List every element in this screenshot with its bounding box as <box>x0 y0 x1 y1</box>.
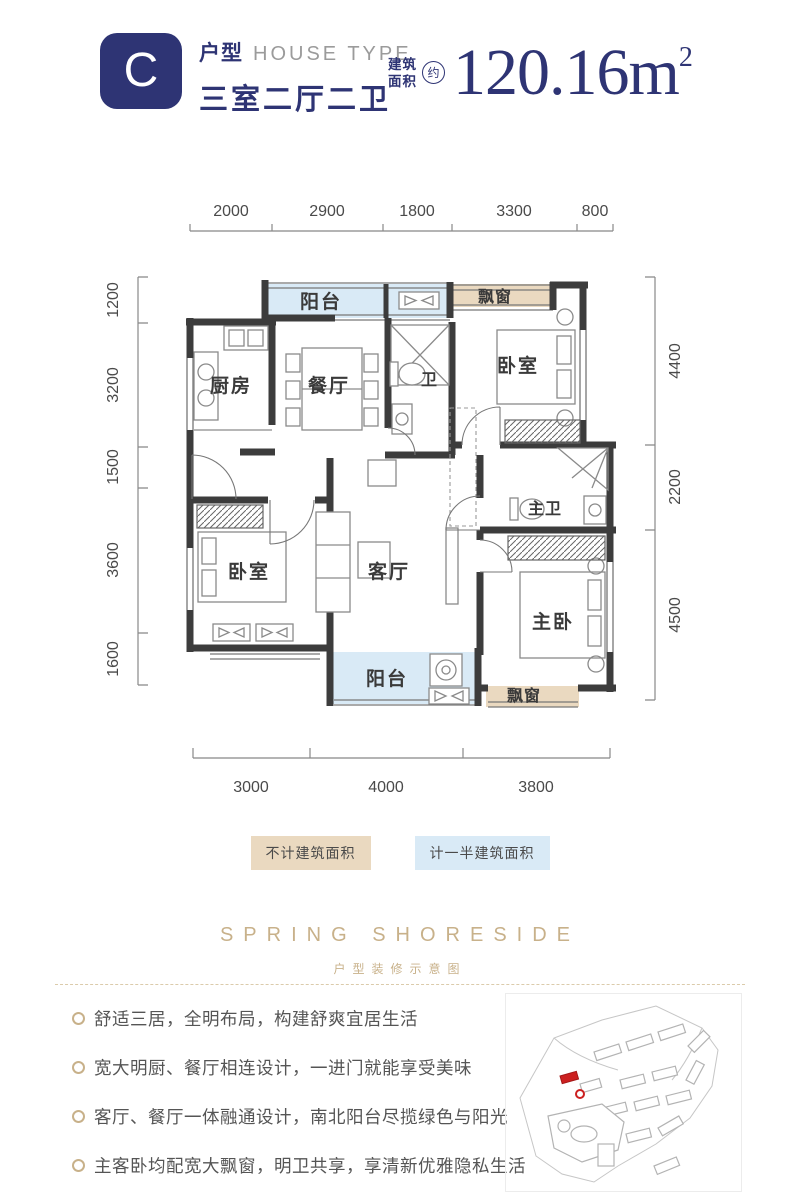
dim-top: 3300 <box>496 203 532 220</box>
room-label: 阳台 <box>366 667 408 690</box>
legend-item-excluded: 不计建筑面积 <box>251 836 371 870</box>
feature-item: 主客卧均配宽大飘窗，明卫共享，享清新优雅隐私生活 <box>72 1153 522 1178</box>
area-value: 120.16m2 <box>453 40 692 106</box>
plan-subtitle: 户型装修示意图 <box>0 960 800 977</box>
room-label: 卫 <box>421 372 438 389</box>
dim-left: 1200 <box>105 282 122 318</box>
bullet-icon <box>72 1159 85 1172</box>
branding: SPRING SHORESIDE 户型装修示意图 <box>0 924 800 977</box>
ac-unit-icon <box>429 688 469 704</box>
dim-right: 4400 <box>667 343 684 379</box>
room-label: 主卧 <box>532 611 574 633</box>
legend-label: 不计建筑面积 <box>251 836 371 870</box>
site-buildings <box>548 1024 710 1174</box>
room-label: 卧室 <box>497 354 539 377</box>
area-prefix-line1: 建筑 <box>388 57 417 74</box>
guest-bath-fixtures <box>390 325 449 434</box>
area-prefix: 建筑 面积 <box>388 57 417 91</box>
house-type-badge: C <box>100 33 182 109</box>
dim-top: 2900 <box>309 203 345 220</box>
legend-label: 计一半建筑面积 <box>415 836 550 870</box>
header: C 户型 HOUSE TYPE 三室二厅二卫 <box>100 33 412 118</box>
room-label: 客厅 <box>368 560 410 583</box>
feature-list: 舒适三居，全明布局，构建舒爽宜居生活 宽大明厨、餐厅相连设计，一进门就能享受美味… <box>72 1006 522 1202</box>
living-furniture <box>316 460 458 612</box>
ac-unit-icon <box>399 292 439 309</box>
room-label: 餐厅 <box>308 374 350 397</box>
room-label: 飘窗 <box>478 287 512 306</box>
bullet-icon <box>72 1110 85 1123</box>
room-label: 阳台 <box>300 290 342 313</box>
dashed-divider <box>55 984 745 985</box>
room-label: 卧室 <box>228 560 270 583</box>
feature-item: 宽大明厨、餐厅相连设计，一进门就能享受美味 <box>72 1055 522 1080</box>
approx-circle: 约 <box>422 61 445 84</box>
dim-left: 3200 <box>105 367 122 403</box>
feature-text: 客厅、餐厅一体融通设计，南北阳台尽揽绿色与阳光 <box>94 1104 508 1129</box>
feature-text: 宽大明厨、餐厅相连设计，一进门就能享受美味 <box>94 1055 472 1080</box>
room-label: 厨房 <box>210 374 252 397</box>
dim-top: 800 <box>582 203 609 220</box>
feature-text: 舒适三居，全明布局，构建舒爽宜居生活 <box>94 1006 418 1031</box>
floor-plan: 阳台 飘窗 厨房 餐厅 卫 卧室 卧室 客厅 主卫 主卧 阳台 飘窗 2000 … <box>80 172 720 822</box>
type-label-zh: 户型 <box>199 37 243 67</box>
washer-icon <box>430 654 462 686</box>
dim-bottom: 4000 <box>368 779 404 796</box>
dim-right: 2200 <box>667 469 684 505</box>
area-number: 120.16m <box>453 36 679 109</box>
dim-top: 2000 <box>213 203 249 220</box>
legend-item-half: 计一半建筑面积 <box>415 836 550 870</box>
dim-left: 1600 <box>105 641 122 677</box>
feature-item: 客厅、餐厅一体融通设计，南北阳台尽揽绿色与阳光 <box>72 1104 522 1129</box>
bullet-icon <box>72 1061 85 1074</box>
area-block: 建筑 面积 约 120.16m2 <box>388 40 692 106</box>
room-label: 主卫 <box>528 499 562 518</box>
feature-text: 主客卧均配宽大飘窗，明卫共享，享清新优雅隐私生活 <box>94 1153 526 1178</box>
room-label: 飘窗 <box>507 686 541 705</box>
dim-left: 3600 <box>105 542 122 578</box>
header-titles: 户型 HOUSE TYPE 三室二厅二卫 <box>199 33 412 118</box>
feature-item: 舒适三居，全明布局，构建舒爽宜居生活 <box>72 1006 522 1031</box>
project-name: SPRING SHORESIDE <box>0 924 800 947</box>
dim-left: 1500 <box>105 449 122 485</box>
legend: 不计建筑面积 计一半建筑面积 <box>0 836 800 870</box>
layout-title: 三室二厅二卫 <box>199 76 412 118</box>
area-prefix-line2: 面积 <box>388 74 417 91</box>
site-map <box>505 993 742 1192</box>
dim-top: 1800 <box>399 203 435 220</box>
dim-right: 4500 <box>667 597 684 633</box>
dim-bottom: 3800 <box>518 779 554 796</box>
area-superscript: 2 <box>679 42 692 73</box>
master-bedroom-furniture <box>508 536 605 672</box>
dim-bottom: 3000 <box>233 779 269 796</box>
location-marker <box>576 1090 584 1098</box>
bullet-icon <box>72 1012 85 1025</box>
